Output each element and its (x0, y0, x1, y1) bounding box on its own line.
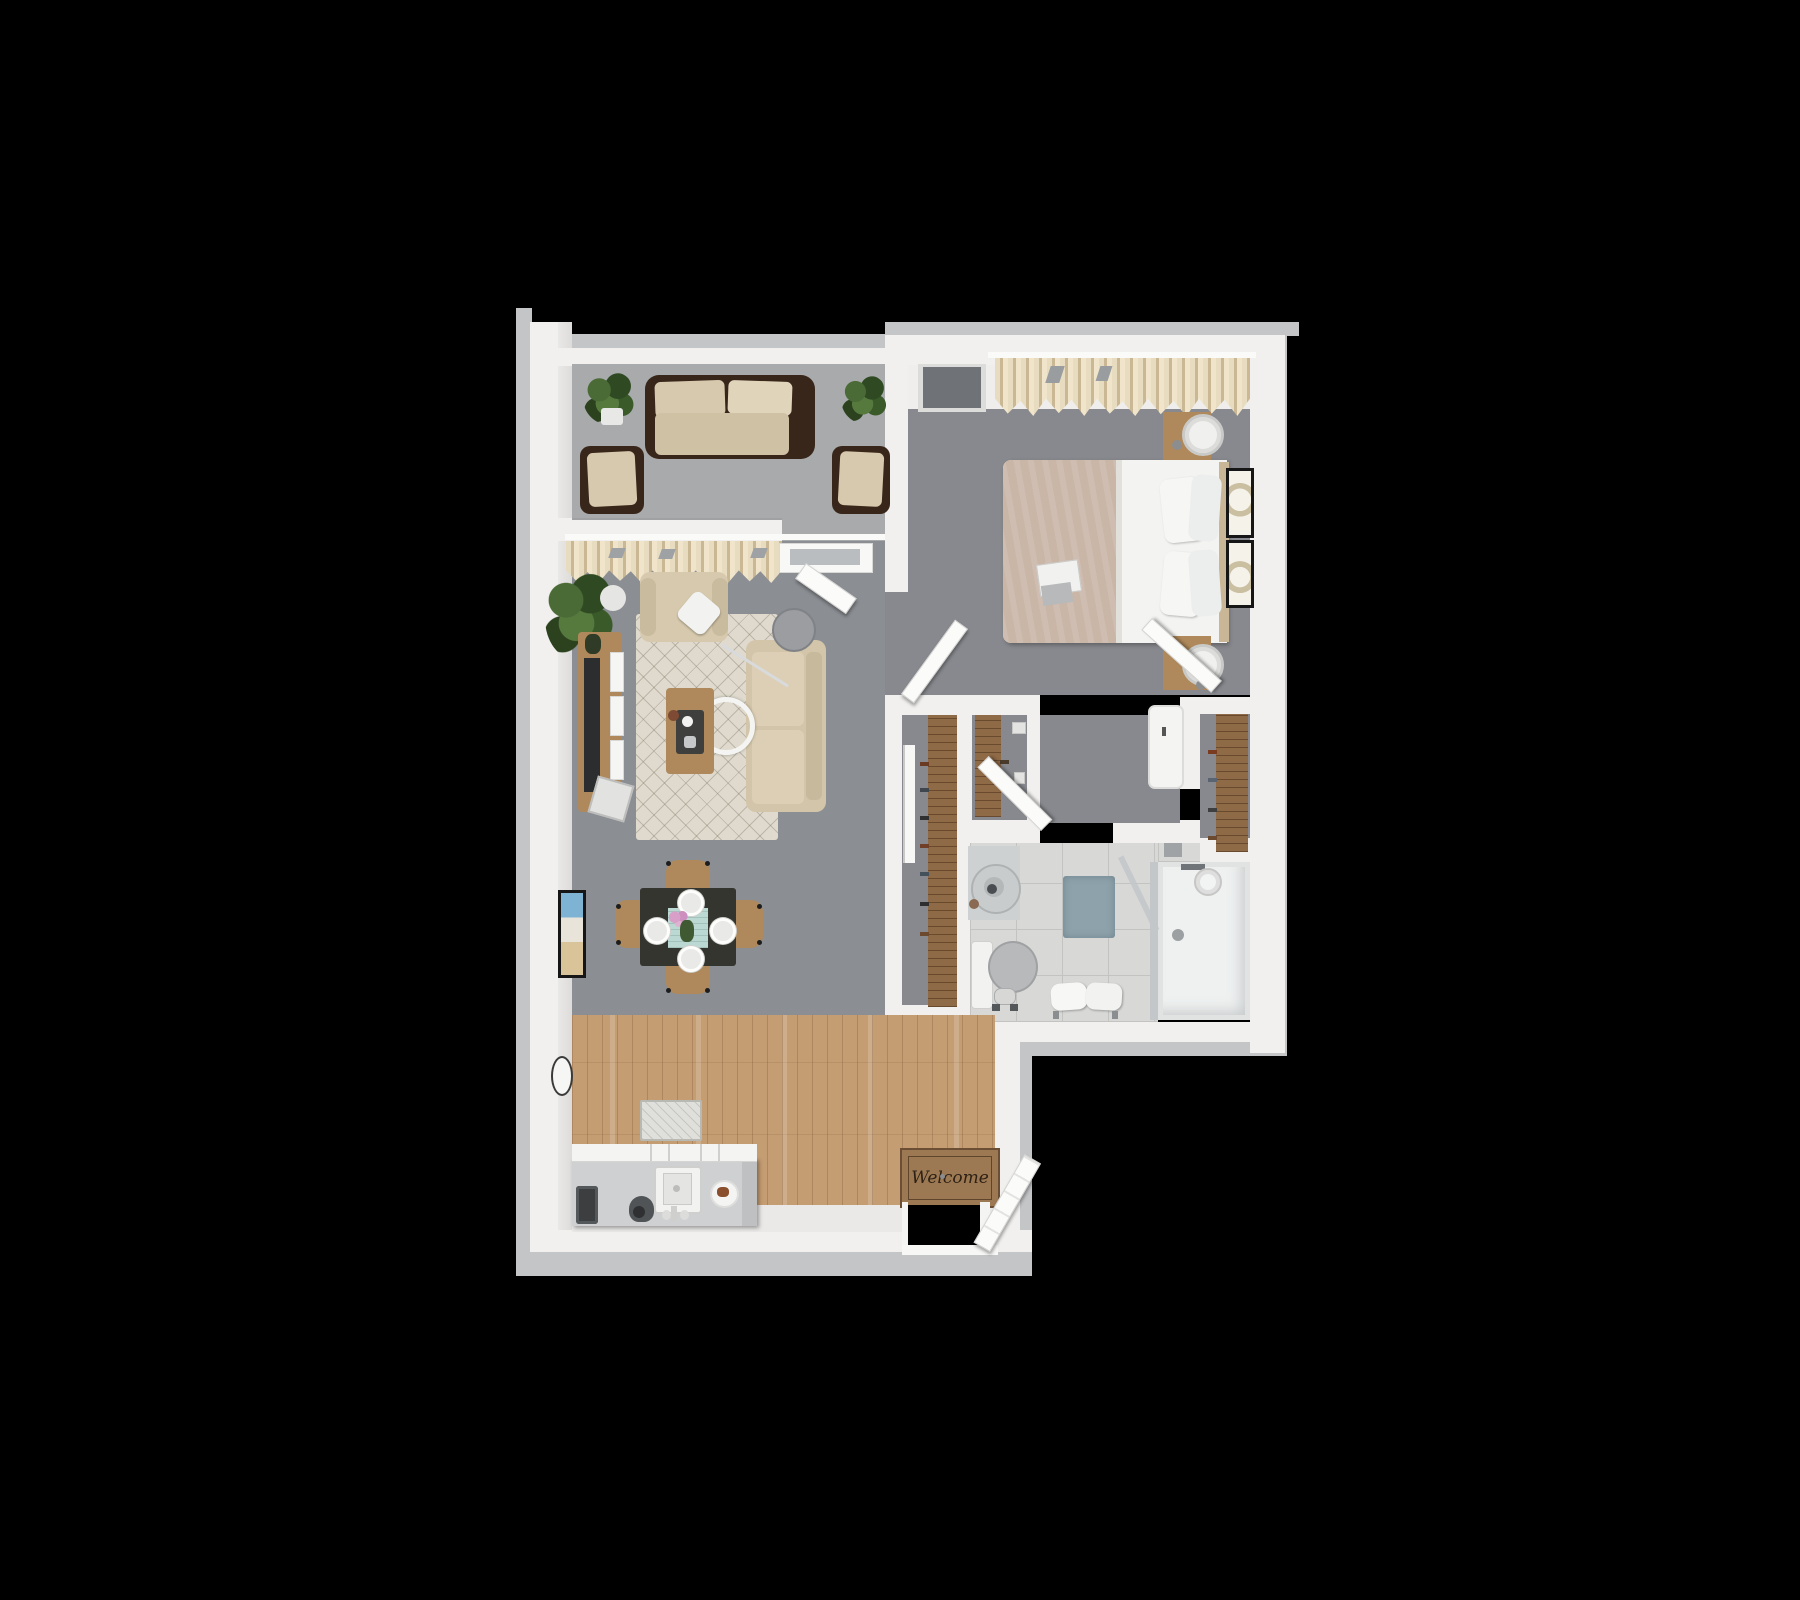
wall-bathroom-top-right (1113, 820, 1200, 843)
console-plant-pot (585, 634, 601, 654)
outer-edge-bedroom-top (885, 322, 1299, 336)
sink-knob-2 (680, 1210, 689, 1220)
bedroom-wall-cabinet (1148, 705, 1184, 789)
kitchen-small-rug (640, 1100, 702, 1141)
coffee-table-deco (684, 736, 696, 748)
loveseat-back (806, 652, 822, 800)
nightstand-top-lamp (1182, 414, 1224, 456)
outer-edge-balcony-top (516, 334, 908, 349)
toilet-paper-stand-leg-1 (992, 1004, 1000, 1011)
place-setting-west (644, 918, 670, 944)
kitchen-island-counter (572, 1144, 757, 1162)
entry-door-handle (940, 1174, 945, 1179)
wall-wing-bottom (995, 1022, 1285, 1042)
closet-nook-shelf (1216, 714, 1248, 852)
wall-left-inner-face (558, 322, 572, 1252)
wicker-chair-left-cushion (587, 451, 638, 507)
nook-hanger-4 (1208, 836, 1217, 840)
island-counter-divider-2 (668, 1144, 670, 1161)
breakfast-tray-tablet (1041, 582, 1073, 606)
sink-spout (671, 1206, 677, 1221)
coffee-table-mug (682, 716, 693, 727)
wall-cabinet-handle (1162, 727, 1166, 736)
chair-finial-2 (705, 861, 710, 866)
shower-head (1194, 868, 1222, 896)
sink-faucet (987, 884, 997, 894)
island-counter-divider-3 (700, 1144, 702, 1161)
closet-left-hanger-5 (920, 872, 929, 876)
balcony-plant-left-pot (601, 408, 623, 425)
towel-bench-leg-2 (1112, 1011, 1118, 1019)
place-setting-south (678, 946, 704, 972)
sink-soap (969, 899, 979, 909)
chair-finial-4 (705, 988, 710, 993)
stand-mixer-bowl (633, 1206, 645, 1218)
bed-pillow-bottom-2 (1188, 549, 1223, 617)
towel-bench-towel-2 (1085, 982, 1122, 1011)
closet-left-hanger-6 (920, 902, 929, 906)
welcome-mat: Welcome (900, 1148, 1000, 1208)
loveseat-seat-cushion-bottom (752, 730, 804, 804)
towel-bench-towel-1 (1050, 982, 1088, 1011)
nook-hanger-1 (1208, 750, 1217, 754)
chair-finial-1 (666, 861, 671, 866)
balcony-plant-right (841, 374, 889, 424)
bed-sheet-fold (1116, 460, 1122, 643)
toilet-paper-stand-leg-2 (1010, 1004, 1018, 1011)
shower-glass-panel (1150, 862, 1158, 1020)
chair-finial-7 (757, 904, 762, 909)
closet-door-panel (903, 745, 915, 863)
shower-drain (1172, 929, 1184, 941)
bed-blanket (1003, 460, 1118, 643)
towel-bench-leg-1 (1053, 1011, 1059, 1019)
chair-finial-5 (616, 904, 621, 909)
outer-edge-wing-bottom (995, 1042, 1287, 1056)
closet-left-hanger-3 (920, 816, 929, 820)
outer-edge-bottom (516, 1252, 1032, 1276)
chair-finial-3 (666, 988, 671, 993)
bath-mat (1063, 876, 1115, 938)
console-drawer-2 (610, 696, 624, 736)
nightstand-top-cup (1172, 440, 1182, 450)
armchair-arm-left (640, 578, 656, 636)
island-counter-divider-4 (718, 1144, 720, 1161)
closet-left-hanger-1 (920, 762, 929, 766)
console-drawer-1 (610, 652, 624, 692)
nook-hanger-2 (1208, 778, 1217, 782)
closet-right-hanger-1 (1000, 760, 1009, 764)
wall-bathroom-top-left (970, 820, 1040, 843)
island-sink-drain (673, 1185, 680, 1192)
toilet-paper-roll (994, 988, 1016, 1005)
bed-pillow-top-2 (1188, 474, 1223, 542)
welcome-mat-text: Welcome (911, 1170, 989, 1187)
place-setting-east (710, 918, 736, 944)
sink-knob-1 (662, 1210, 671, 1220)
chair-finial-8 (757, 940, 762, 945)
wicker-sofa-seat-cushion (655, 413, 789, 455)
bedroom-window-glass (923, 367, 981, 408)
balcony-door-frame-glass (790, 549, 860, 565)
wicker-chair-right-cushion (838, 451, 885, 507)
television (584, 658, 600, 792)
floor-lamp-shade (772, 608, 816, 652)
wicker-sofa-back-cushion-right (727, 380, 792, 416)
loveseat-seat-cushion-top (752, 652, 804, 726)
wall-clock (551, 1056, 573, 1096)
living-plant-pot (600, 585, 626, 611)
closet-left-hanger-4 (920, 844, 929, 848)
console-drawer-3 (610, 740, 624, 780)
closet-shelf-left (928, 715, 957, 1007)
island-counter-divider-1 (650, 1144, 652, 1161)
coffee-table-coaster (668, 710, 679, 721)
entry-doorway-gap (908, 1205, 980, 1250)
toaster (576, 1186, 598, 1224)
wall-bedroom-hall (902, 695, 1040, 715)
wall-bottom-left-segment (530, 1230, 905, 1252)
wall-right (1250, 335, 1285, 1053)
bedroom-wall-art-1 (1226, 468, 1254, 538)
floor-plan: Welcome (0, 0, 1800, 1600)
closet-left-hanger-7 (920, 932, 929, 936)
bedroom-wall-art-2 (1226, 540, 1254, 608)
toilet-seat (988, 941, 1038, 993)
nook-hanger-3 (1208, 808, 1217, 812)
wall-art-beach (558, 890, 586, 978)
flower-vase-greens (680, 920, 694, 942)
closet-left-hanger-2 (920, 788, 929, 792)
bedroom-curtain-rod (988, 352, 1256, 358)
chair-finial-6 (616, 940, 621, 945)
closet-right-bracket-1 (1012, 722, 1026, 734)
food-on-plate (717, 1187, 729, 1197)
living-curtain-rod (565, 534, 885, 540)
bathroom-vent (1164, 843, 1182, 857)
bedroom-door-threshold (885, 592, 908, 695)
